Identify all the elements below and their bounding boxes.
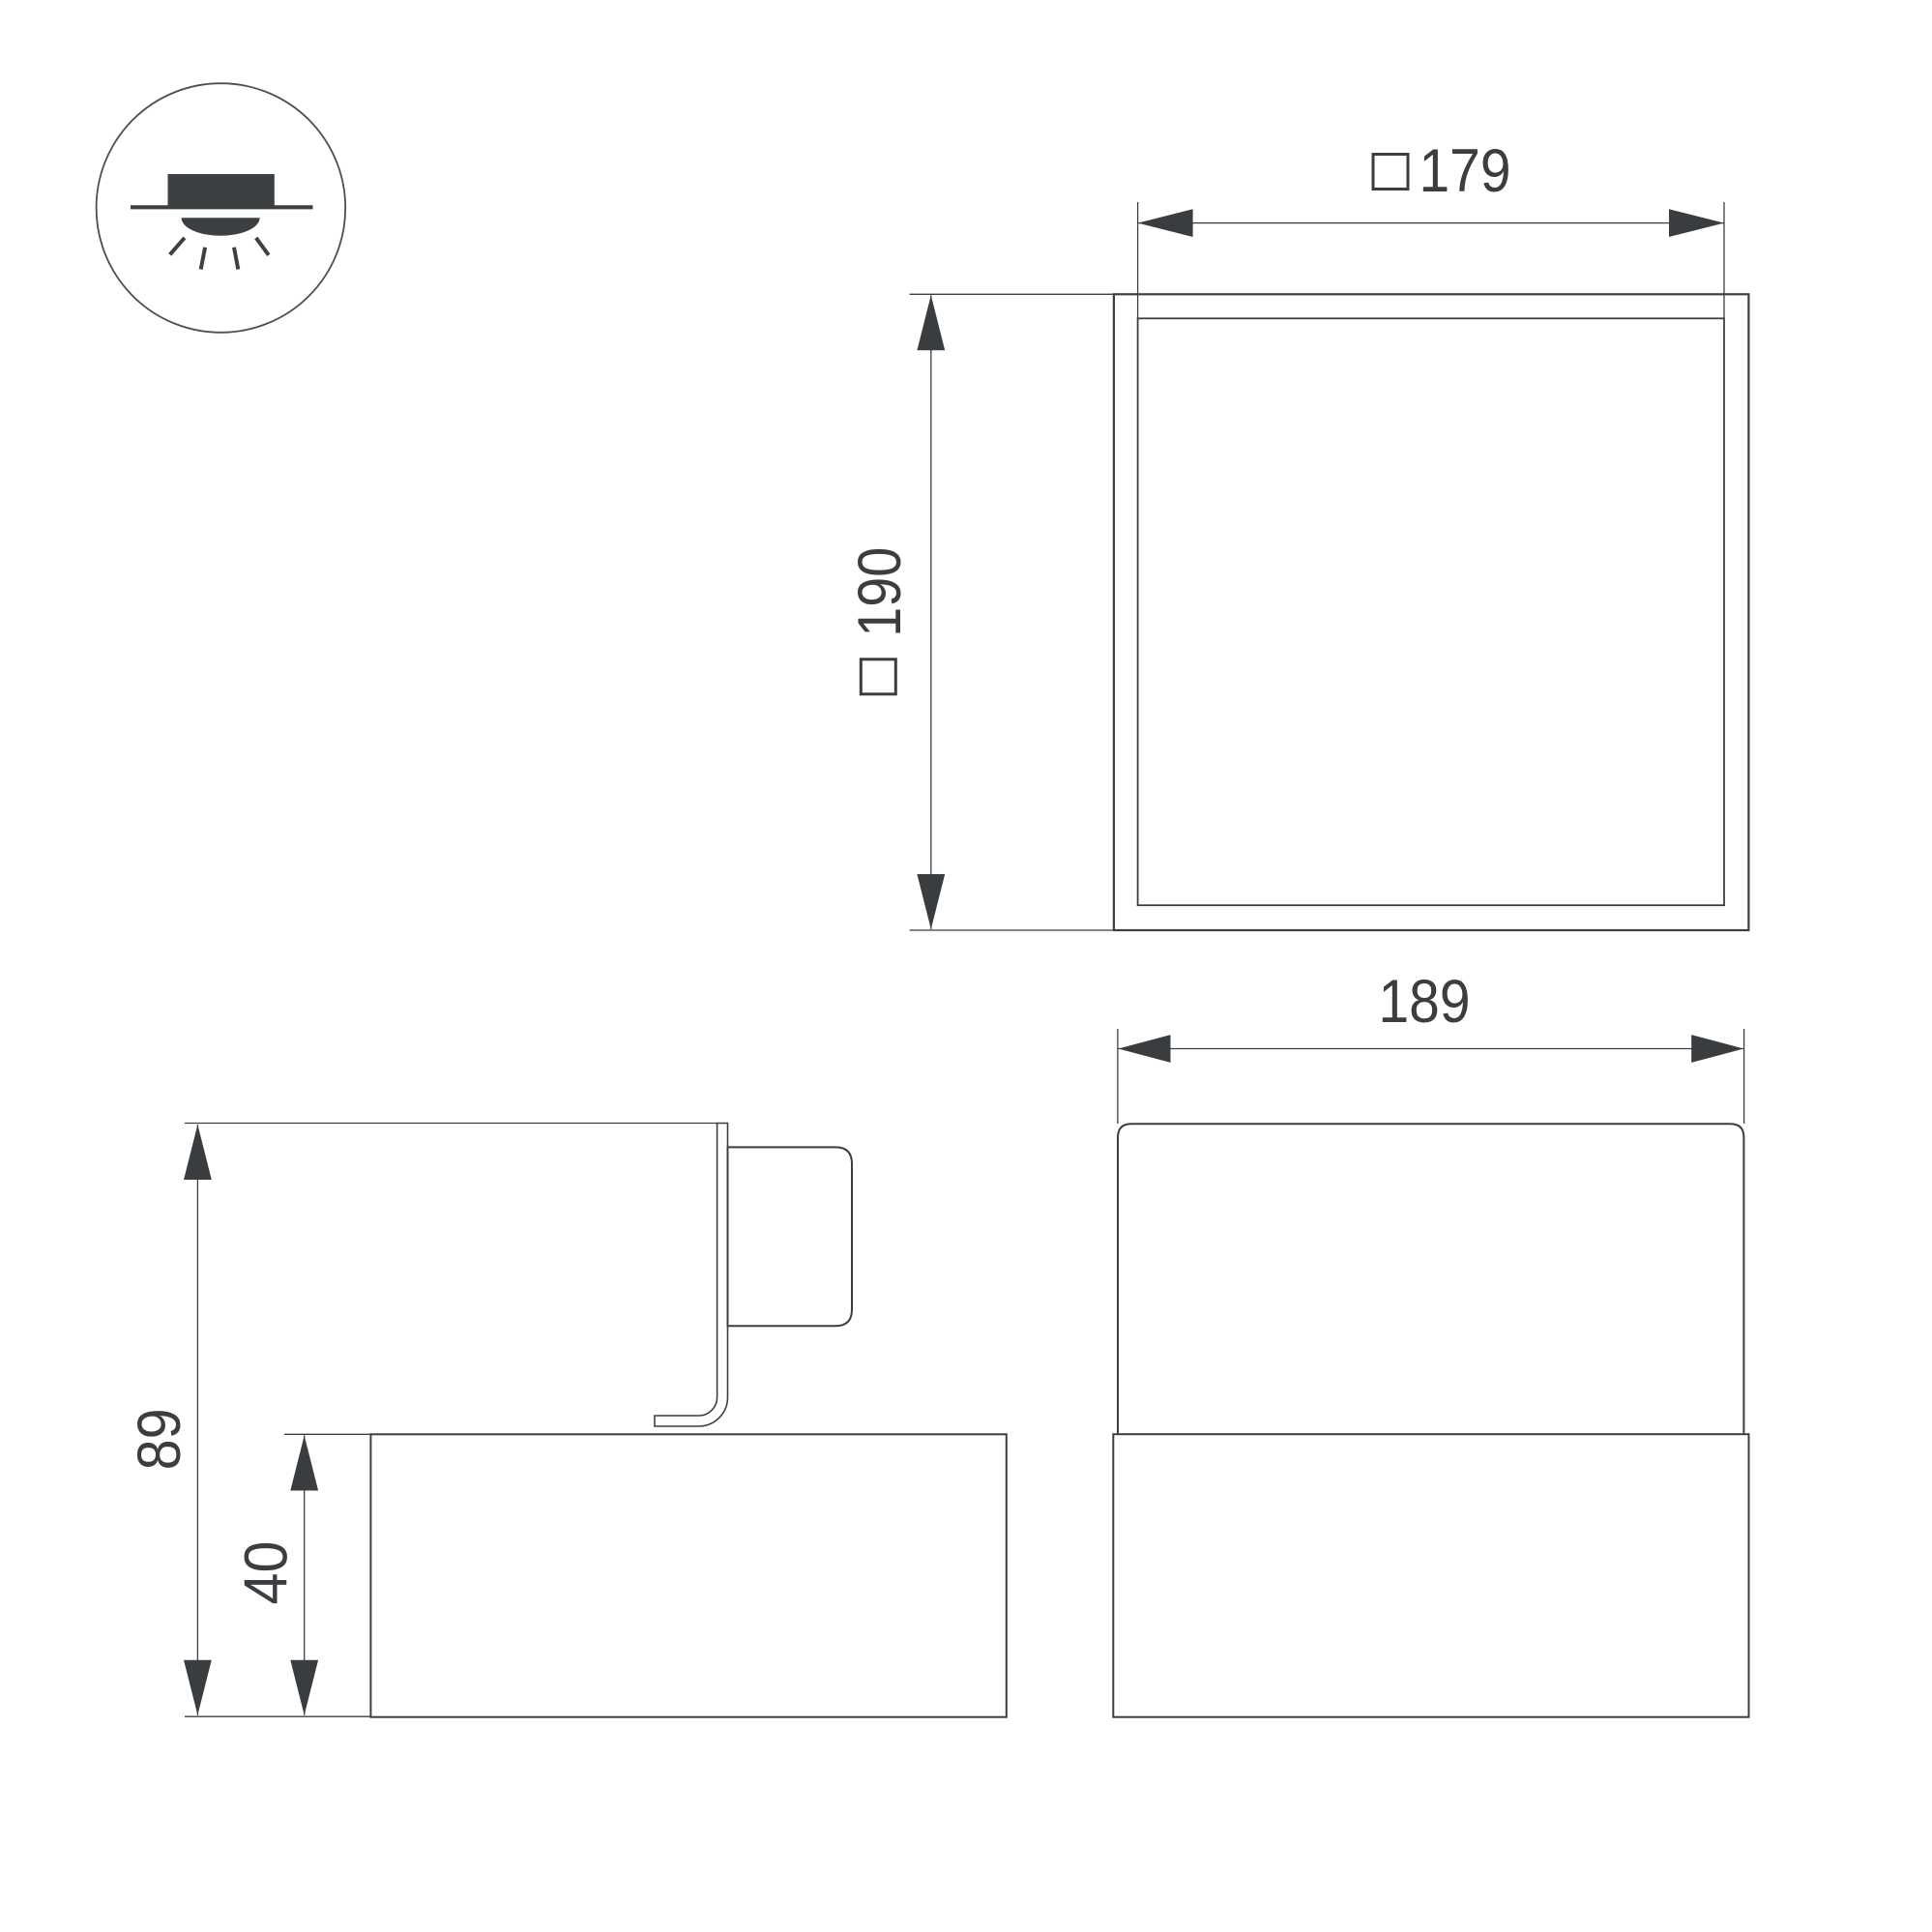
svg-text:40: 40 — [233, 1541, 301, 1605]
svg-text:179: 179 — [1420, 137, 1511, 205]
svg-text:189: 189 — [1379, 968, 1471, 1036]
svg-text:190: 190 — [846, 547, 914, 637]
svg-text:89: 89 — [126, 1408, 193, 1470]
